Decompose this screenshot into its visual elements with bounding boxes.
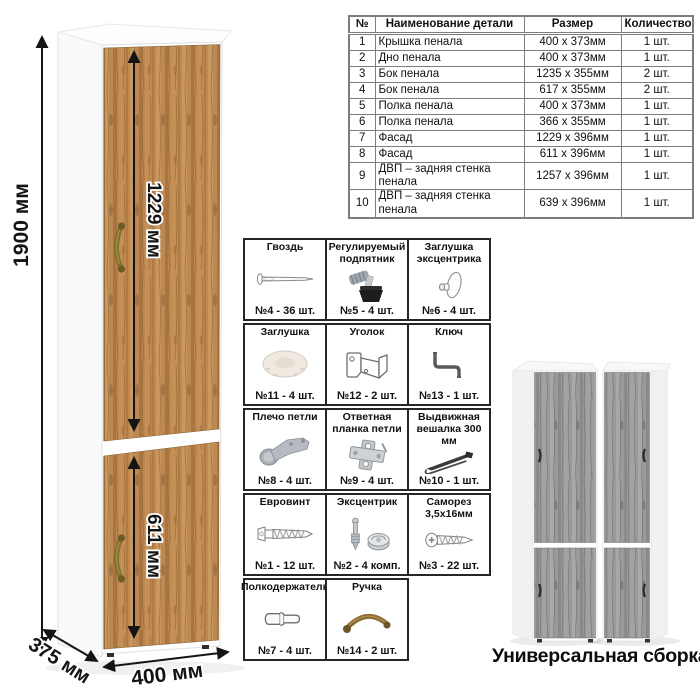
part-qty: 1 шт.	[621, 147, 693, 163]
hardware-title: Ручка	[351, 580, 383, 594]
part-name: Полка пенала	[375, 115, 524, 131]
hardware-count: №8 - 4 шт.	[258, 475, 312, 489]
hardware-cell-hinge-arm: Плечо петли №8 - 4 шт.	[243, 408, 327, 491]
part-num: 4	[349, 83, 375, 99]
hardware-grid: Гвоздь №4 - 36 шт. Регулируемый подпятни…	[243, 238, 495, 663]
part-size: 1235 x 355мм	[524, 67, 621, 83]
table-row: 8Фасад611 x 396мм1 шт.	[349, 147, 693, 163]
hardware-row: Евровинт №1 - 12 шт. Эксцентрик №2 - 4 к…	[243, 493, 495, 576]
col-header-name: Наименование детали	[375, 16, 524, 34]
hardware-count: №11 - 4 шт.	[255, 390, 315, 404]
cabinet-foot	[202, 645, 209, 649]
part-qty: 1 шт.	[621, 51, 693, 67]
part-size: 1257 x 396мм	[524, 163, 621, 190]
eccentric-cap-icon	[429, 266, 469, 306]
part-size: 400 x 373мм	[524, 51, 621, 67]
hardware-title: Ключ	[434, 325, 464, 339]
part-num: 6	[349, 115, 375, 131]
part-num: 5	[349, 99, 375, 115]
hardware-count: №4 - 36 шт.	[255, 305, 315, 319]
hardware-title: Гвоздь	[266, 240, 305, 254]
hardware-count: №10 - 1 шт.	[419, 475, 479, 489]
part-num: 3	[349, 67, 375, 83]
cabinet-side-panel	[58, 32, 102, 657]
part-num: 7	[349, 131, 375, 147]
part-size: 611 x 396мм	[524, 147, 621, 163]
col-header-size: Размер	[524, 16, 621, 34]
hardware-count: №1 - 12 шт.	[255, 560, 315, 574]
part-name: Дно пенала	[375, 51, 524, 67]
hardware-cell-hinge-plate: Ответная планка петли №9 - 4 шт.	[325, 408, 409, 491]
universal-assembly-caption: Универсальная сборка.	[492, 645, 700, 668]
hardware-cell-pullout-hanger: Выдвижная вешалка 300 мм №10 - 1 шт.	[407, 408, 491, 491]
hardware-title: Саморез 3,5х16мм	[409, 495, 489, 521]
table-row: 6Полка пенала366 x 355мм1 шт.	[349, 115, 693, 131]
handle-icon	[339, 594, 395, 645]
left-gray-cabinet	[513, 361, 597, 643]
col-header-num: №	[349, 16, 375, 34]
table-row: 2Дно пенала400 x 373мм1 шт.	[349, 51, 693, 67]
table-row: 10ДВП – задняя стенка пенала639 x 396мм1…	[349, 190, 693, 218]
hardware-count: №12 - 2 шт.	[337, 390, 397, 404]
table-row: 1Крышка пенала400 x 373мм1 шт.	[349, 34, 693, 51]
hardware-cell-adjustable-foot: Регулируемый подпятник №5 - 4 шт.	[325, 238, 409, 321]
hardware-row: Полкодержатель №7 - 4 шт. Ручка №14 - 2 …	[243, 578, 495, 661]
hardware-row: Плечо петли №8 - 4 шт. Ответная планка п…	[243, 408, 495, 491]
hardware-count: №5 - 4 шт.	[340, 305, 394, 319]
part-num: 2	[349, 51, 375, 67]
part-qty: 1 шт.	[621, 163, 693, 190]
hardware-title: Ответная планка петли	[327, 410, 407, 436]
right-gray-cabinet	[603, 362, 670, 643]
hardware-title: Заглушка	[260, 325, 311, 339]
parts-table-header-row: № Наименование детали Размер Количество	[349, 16, 693, 34]
col-header-qty: Количество	[621, 16, 693, 34]
hardware-count: №6 - 4 шт.	[422, 305, 476, 319]
hardware-cell-eccentric: Эксцентрик №2 - 4 комп.	[325, 493, 409, 576]
part-num: 1	[349, 34, 375, 51]
total-height-label: 1900 мм	[10, 183, 33, 267]
lower-door-label: 611 мм	[143, 514, 164, 578]
table-row: 4Бок пенала617 x 355мм2 шт.	[349, 83, 693, 99]
hardware-title: Плечо петли	[251, 410, 318, 424]
hardware-cell-euroscrew: Евровинт №1 - 12 шт.	[243, 493, 327, 576]
part-num: 10	[349, 190, 375, 218]
part-size: 1229 x 396мм	[524, 131, 621, 147]
hardware-count: №9 - 4 шт.	[340, 475, 394, 489]
table-row: 5Полка пенала400 x 373мм1 шт.	[349, 99, 693, 115]
hardware-title: Заглушка эксцентрика	[409, 240, 489, 266]
corner-bracket-icon	[342, 339, 392, 390]
hardware-count: №7 - 4 шт.	[258, 645, 312, 659]
hardware-count: №13 - 1 шт.	[419, 390, 479, 404]
pullout-hanger-icon	[419, 447, 479, 475]
part-size: 366 x 355мм	[524, 115, 621, 131]
universal-assembly-cabinets	[510, 361, 680, 646]
hardware-cell-cap: Заглушка №11 - 4 шт.	[243, 323, 327, 406]
table-row: 3Бок пенала1235 x 355мм2 шт.	[349, 67, 693, 83]
hardware-count: №2 - 4 комп.	[333, 560, 400, 574]
part-name: ДВП – задняя стенка пенала	[375, 190, 524, 218]
hardware-row: Гвоздь №4 - 36 шт. Регулируемый подпятни…	[243, 238, 495, 321]
hardware-cell-nail: Гвоздь №4 - 36 шт.	[243, 238, 327, 321]
part-name: Крышка пенала	[375, 34, 524, 51]
part-qty: 2 шт.	[621, 67, 693, 83]
cap-icon	[260, 339, 310, 390]
eccentric-icon	[340, 509, 394, 560]
hardware-title: Эксцентрик	[336, 495, 398, 509]
part-name: ДВП – задняя стенка пенала	[375, 163, 524, 190]
part-qty: 1 шт.	[621, 34, 693, 51]
part-name: Фасад	[375, 147, 524, 163]
hinge-plate-icon	[344, 436, 390, 476]
cabinet-foot	[107, 653, 114, 657]
euroscrew-icon	[254, 509, 316, 560]
table-row: 7Фасад1229 x 396мм1 шт.	[349, 131, 693, 147]
assembly-instruction-sheet: 1900 мм 1229 мм 611 мм 375 мм 400 мм № Н…	[0, 0, 700, 700]
part-size: 400 x 373мм	[524, 34, 621, 51]
table-row: 9ДВП – задняя стенка пенала1257 x 396мм1…	[349, 163, 693, 190]
part-size: 639 x 396мм	[524, 190, 621, 218]
hardware-cell-handle: Ручка №14 - 2 шт.	[325, 578, 409, 661]
part-size: 400 x 373мм	[524, 99, 621, 115]
adjustable-foot-icon	[343, 266, 391, 306]
part-qty: 1 шт.	[621, 99, 693, 115]
hardware-title: Выдвижная вешалка 300 мм	[409, 410, 489, 447]
hardware-cell-shelf-support: Полкодержатель №7 - 4 шт.	[243, 578, 327, 661]
hardware-cell-selftapping-screw: Саморез 3,5х16мм №3 - 22 шт.	[407, 493, 491, 576]
part-qty: 1 шт.	[621, 190, 693, 218]
hardware-row: Заглушка №11 - 4 шт. Уголок №12 - 2 шт. …	[243, 323, 495, 406]
part-size: 617 x 355мм	[524, 83, 621, 99]
hardware-title: Полкодержатель	[240, 580, 330, 594]
hardware-title: Уголок	[349, 325, 386, 339]
part-name: Полка пенала	[375, 99, 524, 115]
nail-icon	[253, 254, 317, 305]
hardware-count: №14 - 2 шт.	[337, 645, 397, 659]
hex-key-icon	[425, 339, 473, 390]
selftapping-screw-icon	[422, 521, 476, 561]
upper-door-label: 1229 мм	[143, 182, 164, 258]
parts-table: № Наименование детали Размер Количество …	[348, 15, 694, 219]
part-name: Бок пенала	[375, 83, 524, 99]
part-qty: 2 шт.	[621, 83, 693, 99]
part-num: 8	[349, 147, 375, 163]
hinge-arm-icon	[257, 424, 313, 475]
part-name: Фасад	[375, 131, 524, 147]
hardware-title: Регулируемый подпятник	[327, 240, 407, 266]
hardware-cell-key: Ключ №13 - 1 шт.	[407, 323, 491, 406]
hardware-title: Евровинт	[259, 495, 312, 509]
part-qty: 1 шт.	[621, 115, 693, 131]
hardware-count: №3 - 22 шт.	[419, 560, 479, 574]
hardware-cell-eccentric-cap: Заглушка эксцентрика №6 - 4 шт.	[407, 238, 491, 321]
hardware-cell-corner-bracket: Уголок №12 - 2 шт.	[325, 323, 409, 406]
part-num: 9	[349, 163, 375, 190]
shelf-support-icon	[261, 594, 309, 645]
part-name: Бок пенала	[375, 67, 524, 83]
part-qty: 1 шт.	[621, 131, 693, 147]
